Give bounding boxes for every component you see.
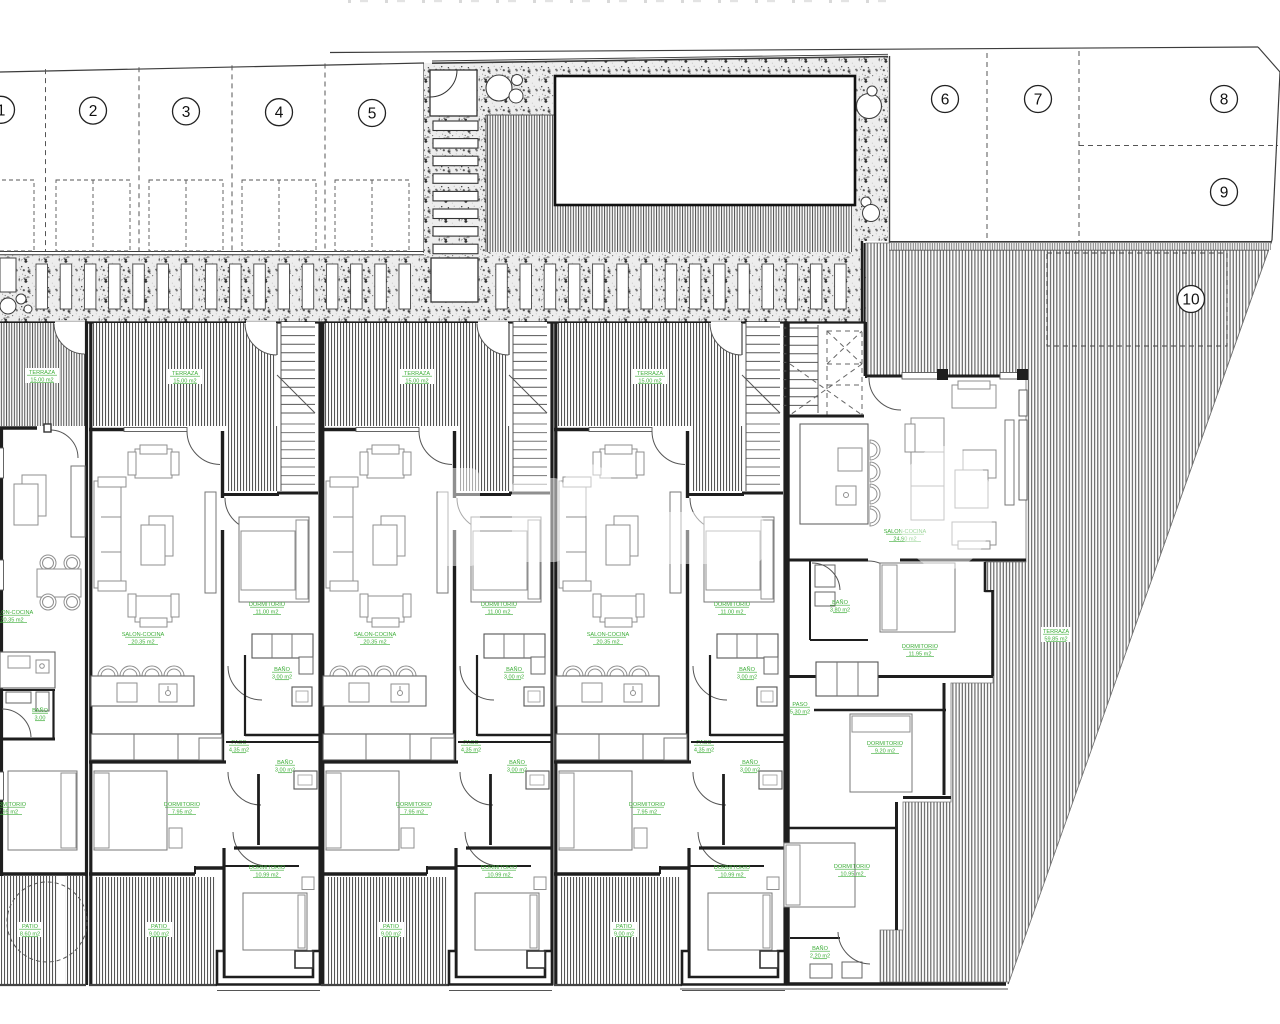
svg-text:10: 10	[1182, 292, 1200, 309]
svg-text:2: 2	[89, 103, 98, 120]
svg-text:7: 7	[1034, 92, 1043, 109]
svg-text:5: 5	[368, 106, 377, 123]
svg-text:9: 9	[1220, 185, 1229, 202]
svg-text:1: 1	[0, 102, 5, 119]
svg-text:3: 3	[182, 104, 191, 121]
svg-text:6: 6	[941, 92, 950, 109]
svg-text:4: 4	[275, 105, 284, 122]
svg-text:8: 8	[1220, 92, 1229, 109]
